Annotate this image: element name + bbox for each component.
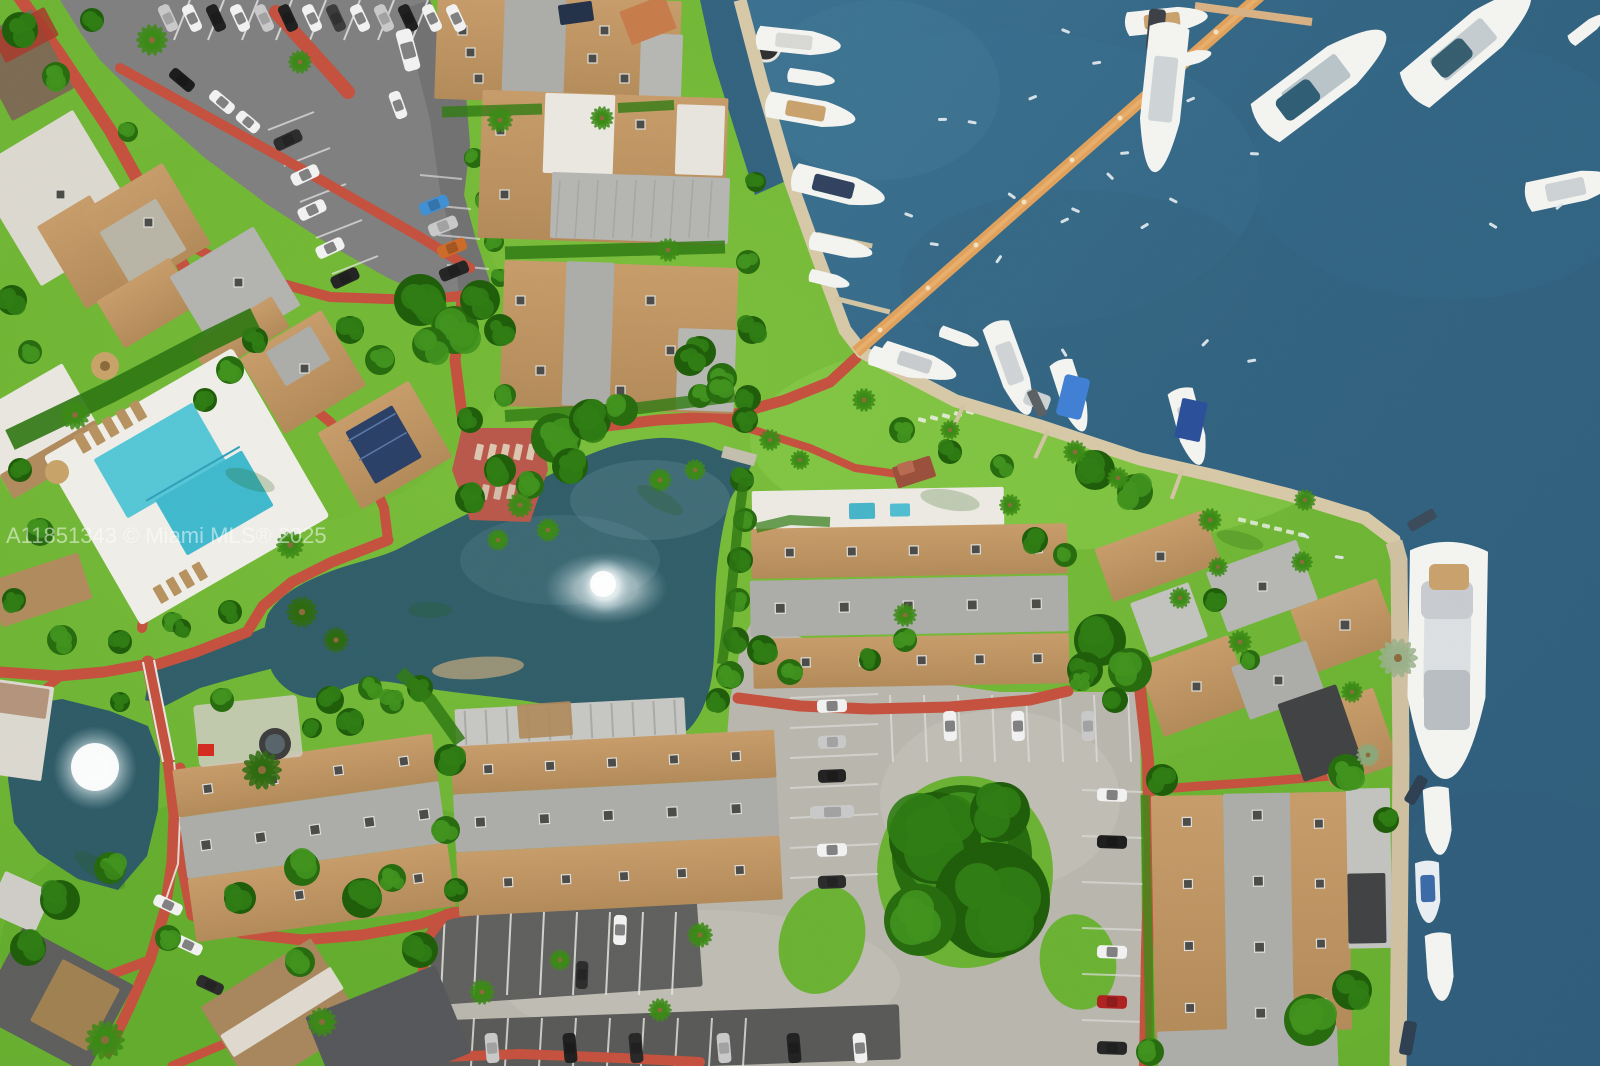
svg-text:A11851343 © Miami MLS® 2025: A11851343 © Miami MLS® 2025 xyxy=(6,523,327,548)
